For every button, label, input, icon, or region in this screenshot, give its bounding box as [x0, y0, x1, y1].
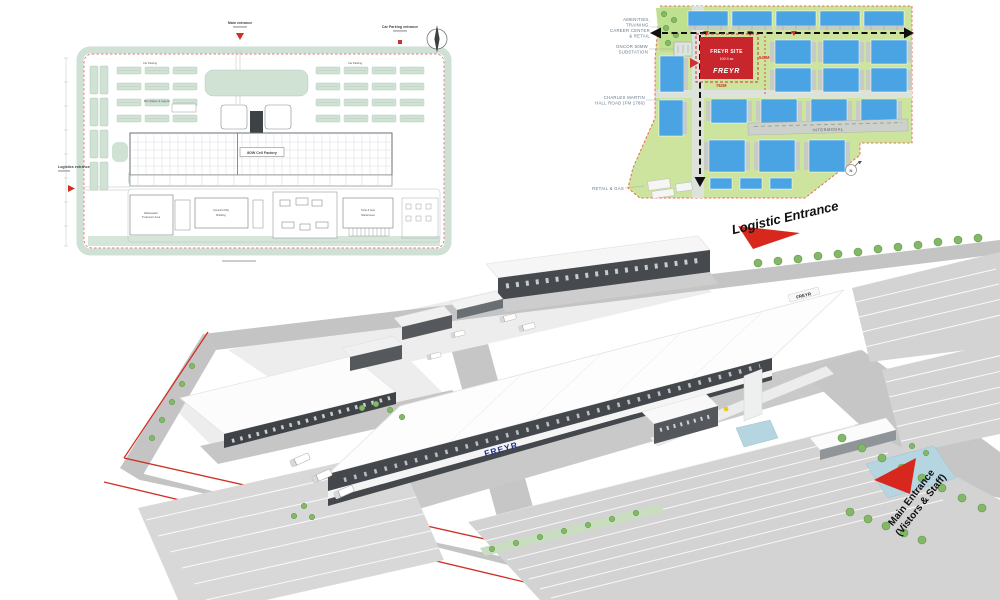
wastewater-area — [130, 195, 173, 235]
dim-762m: 762M — [716, 83, 727, 88]
logistics-entrance-label: Logistics entrance — [58, 165, 90, 169]
svg-text:Treatment Area: Treatment Area — [142, 215, 161, 219]
tower-slab — [744, 369, 762, 421]
factory-building: 8GW Cell Factory — [130, 133, 392, 186]
bulk-gas-station — [253, 200, 263, 228]
car-parking-entrance-marker-icon — [398, 40, 402, 44]
scene: Car Parking Car Parking Bus Station & Ca… — [0, 0, 1000, 600]
fire-water-tanks — [175, 200, 190, 230]
svg-text:HALL ROAD (FM 1786): HALL ROAD (FM 1786) — [595, 101, 645, 106]
dim-549m: 549M — [759, 55, 770, 60]
bus-station — [172, 104, 196, 112]
svg-text:& RETAIL: & RETAIL — [629, 34, 650, 39]
map-road-vertical — [692, 6, 704, 198]
svg-text:SUBSTATION: SUBSTATION — [619, 50, 648, 55]
main-entrance-sublabel — [233, 26, 247, 28]
svg-text:CAREER CENTER: CAREER CENTER — [610, 28, 650, 33]
amenities-label: AMENITIES, — [623, 17, 650, 22]
green-blob — [112, 142, 128, 162]
freyr-site-area: 100.9 ac — [720, 57, 734, 61]
floor-plan-bottom-green — [88, 236, 440, 246]
green-median — [205, 70, 308, 96]
plan-title-text — [222, 260, 256, 262]
central-utility-label: Central Utility — [213, 208, 230, 212]
factory-label: 8GW Cell Factory — [247, 151, 277, 155]
intermodal-label: INTERMODAL — [812, 127, 844, 133]
substation-label: ONCOR 60MW — [616, 44, 649, 49]
car-parking-left-label: Car Parking — [143, 61, 158, 65]
car-parking-entrance-label: Car Parking entrance — [382, 25, 418, 29]
tank-warehouse-label: Tank & Gas — [361, 208, 376, 212]
car-parking-right-label: Car Parking — [348, 61, 363, 65]
retail-gas-label: RETAIL & GAS — [592, 186, 624, 191]
freyr-site-name: FREYR SITE — [710, 49, 743, 55]
road-label: CHARLES MARTIN — [604, 95, 645, 100]
sculpture-accent — [724, 407, 729, 412]
tank-gas-warehouse — [343, 198, 393, 228]
central-utility-building — [195, 198, 248, 228]
screenshot-root: Car Parking Car Parking Bus Station & Ca… — [0, 0, 1000, 600]
svg-text:N: N — [850, 168, 853, 173]
svg-text:Building: Building — [216, 213, 226, 217]
bus-station-label: Bus Station & Carport — [144, 99, 170, 103]
svg-text:TRAINING,: TRAINING, — [626, 23, 650, 28]
svg-text:Warehouse: Warehouse — [361, 213, 375, 217]
freyr-site-logo: FREYR — [713, 68, 740, 75]
main-entrance-label: Main entrance — [228, 21, 252, 25]
wastewater-label: Wastewater — [144, 211, 158, 215]
floor-plan: Car Parking Car Parking Bus Station & Ca… — [58, 21, 448, 262]
